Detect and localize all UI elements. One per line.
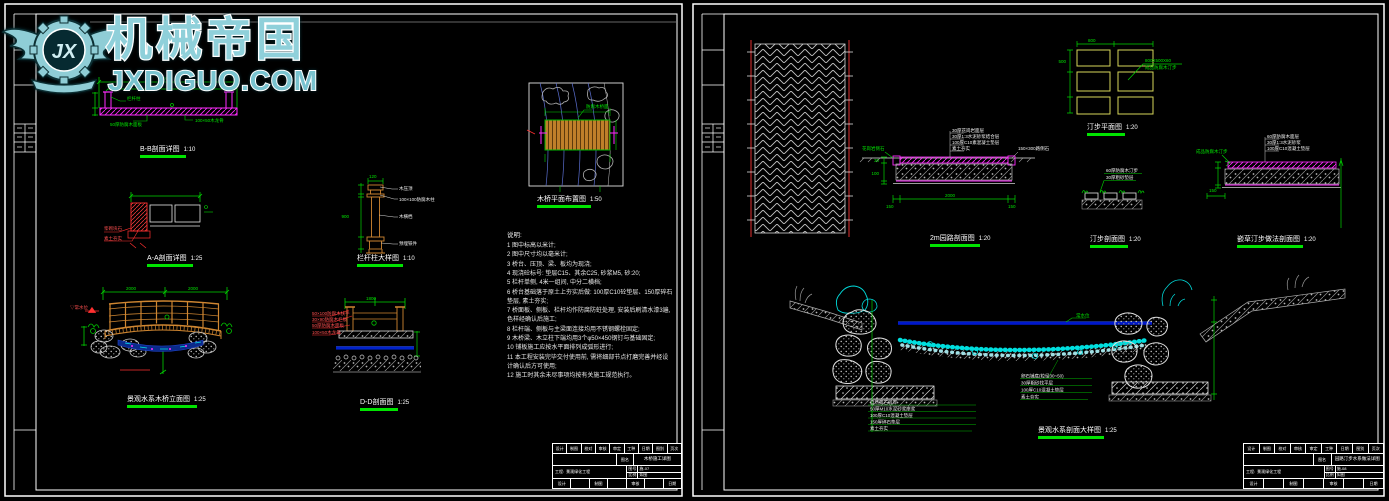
svg-text:150: 150 — [1209, 188, 1217, 193]
titleblock-cell — [1263, 479, 1283, 488]
label-scale: 1:10 — [403, 256, 415, 262]
construction-notes: 说明: 1 图中标高以米计; 2 图中尺寸均以毫米计; 3 桥台、压顶、梁、板均… — [507, 231, 673, 382]
titleblock-cell — [1303, 479, 1323, 488]
titleblock-cell: 校对 — [1274, 444, 1290, 453]
svg-text:900: 900 — [341, 214, 349, 219]
label-underline — [357, 264, 403, 267]
svg-text:100×100防腐木柱: 100×100防腐木柱 — [399, 196, 435, 203]
dd-section-drawing: 1800 50×100防腐木扶手 30×90防腐木栏板 50厚防腐木面板 100… — [312, 296, 421, 372]
label-text: A-A剖面详图 — [147, 255, 187, 262]
svg-text:150×300路侧石: 150×300路侧石 — [1018, 145, 1050, 152]
stepping-stone-section: 60厚防腐木汀步 30厚粗砂垫层 — [1082, 167, 1144, 209]
titleblock-cell: 审定 — [609, 444, 623, 453]
svg-text:800X500X60: 800X500X60 — [1145, 58, 1172, 63]
titleblock-name-value: 园路汀步水系做法详图 — [1331, 454, 1383, 465]
label-stream-section: 景观水系剖面大样图1:25 — [1038, 427, 1117, 439]
svg-text:100厚C10混凝土垫层: 100厚C10混凝土垫层 — [870, 412, 913, 419]
watermark-site: JXDIGUO.COM — [108, 65, 318, 96]
label-underline — [1237, 245, 1303, 248]
titleblock-cell: 图别 — [652, 444, 666, 453]
label-railing-post: 栏杆柱大样图1:10 — [357, 255, 415, 267]
titleblock-cell — [1244, 454, 1313, 465]
project-value: 景观绿化工程 — [566, 470, 590, 474]
note-line: 1 图中标高以米计; — [507, 242, 673, 251]
watermark-logo-text: JX — [52, 41, 78, 63]
note-line: 6 桥台基础落于原土上夯实后做: 100厚C10砼垫层、150厚碎石垫层, 素土… — [507, 289, 673, 308]
svg-text:100厚C10素混凝土垫层: 100厚C10素混凝土垫层 — [952, 139, 1000, 146]
svg-text:120: 120 — [369, 174, 377, 179]
svg-text:100厚C10混凝土垫层: 100厚C10混凝土垫层 — [1267, 145, 1310, 152]
titleblock-cell: 页次 — [1368, 444, 1384, 453]
titleblock-project: 工程: 景观绿化工程 — [1244, 466, 1324, 478]
aa-section-drawing: 浆砌块石 素土夯实 — [104, 192, 213, 248]
project-label: 工程: — [1246, 470, 1255, 474]
road-section-drawing: 30厚花岗岩面层 30厚1:3水泥砂浆结合层 100厚C10素混凝土垫层 素土夯… — [860, 127, 1050, 209]
titleblock-cell: 审核 — [626, 479, 644, 488]
svg-text:2000: 2000 — [945, 193, 956, 198]
titleblock-cell: 日期 — [1363, 479, 1383, 488]
label-scale: 1:20 — [1304, 237, 1316, 243]
notes-title: 说明: — [507, 231, 673, 241]
label-underline — [930, 244, 980, 247]
note-line: 2 图中尺寸均以毫米计; — [507, 251, 673, 260]
svg-text:2000: 2000 — [126, 286, 137, 291]
svg-text:30: 30 — [874, 158, 880, 163]
label-scale: 1:20 — [1129, 237, 1141, 243]
label-underline — [1038, 436, 1104, 439]
titleblock-cell: 设计 — [553, 444, 566, 453]
grass-paver-section: 60厚防腐木面层 30厚1:3水泥砂浆 100厚C10混凝土垫层 成品防腐木汀步… — [1196, 133, 1343, 228]
titleblock-cell: 工种 — [1321, 444, 1337, 453]
watermark: JX 机械帝国 JXDIGUO.COM — [0, 0, 340, 110]
label-text: 木桥平面布置图 — [537, 196, 586, 203]
svg-text:浆砌块石: 浆砌块石 — [104, 225, 122, 232]
svg-text:自然景石驳岸: 自然景石驳岸 — [870, 399, 897, 406]
label-bridge-elevation: 景观水系木桥立面图1:25 — [127, 396, 206, 408]
label-text: 2m园路剖面图 — [930, 235, 975, 242]
titleblock-cell: 制图 — [589, 479, 607, 488]
svg-text:常水位: 常水位 — [1076, 312, 1090, 319]
titleblock-cell: 校对 — [581, 444, 595, 453]
svg-text:1800: 1800 — [366, 296, 377, 301]
label-scale: 1:25 — [397, 400, 409, 406]
svg-text:100: 100 — [871, 171, 879, 176]
titleblock-cell — [553, 454, 616, 465]
titleblock-cell: 工种 — [624, 444, 638, 453]
svg-text:30×90防腐木栏板: 30×90防腐木栏板 — [312, 316, 348, 323]
label-road-section: 2m园路剖面图1:20 — [930, 235, 990, 247]
svg-text:100×50木龙骨: 100×50木龙骨 — [312, 329, 341, 336]
label-grass-paver-section: 嵌草汀步做法剖面图1:20 — [1237, 236, 1316, 248]
titleblock-project: 工程: 景观绿化工程 — [553, 466, 626, 478]
label-underline — [360, 408, 398, 411]
label-scale: 1:25 — [194, 397, 206, 403]
label-scale: 1:25 — [1105, 428, 1117, 434]
label-text: B-B剖面详图 — [140, 146, 180, 153]
label-underline — [537, 205, 591, 208]
svg-text:花岗岩侧石: 花岗岩侧石 — [862, 145, 885, 152]
titleblock-name-label: 图名 — [616, 454, 633, 465]
svg-text:50厚M10水泥砂浆座浆: 50厚M10水泥砂浆座浆 — [870, 406, 916, 413]
titleblock-cell: 图别 — [1352, 444, 1368, 453]
note-line: 8 栏杆端、侧板与主梁面连接均用不锈钢螺栓固定; — [507, 326, 673, 335]
titleblock-cell — [607, 479, 625, 488]
titleblock-cell: 日期 — [638, 444, 652, 453]
titleblock-cell: 审定 — [1305, 444, 1321, 453]
project-value: 景观绿化工程 — [1257, 470, 1281, 474]
titleblock-cell: 制图 — [1259, 444, 1275, 453]
svg-text:150: 150 — [886, 204, 894, 209]
svg-text:成品防腐木汀步: 成品防腐木汀步 — [1196, 148, 1228, 155]
label-scale: 1:25 — [191, 256, 203, 262]
note-line: 7 桥面板、侧板、栏杆均作防腐防蛀处理, 安装后刷清水漆3遍, 色样经确认后施工… — [507, 307, 673, 326]
cad-canvas: text{font-family:"Liberation Sans",sans-… — [0, 0, 1389, 501]
label-text: 栏杆柱大样图 — [357, 255, 399, 262]
titleblock-cell: 审核 — [595, 444, 609, 453]
titleblock-name-label: 图名 — [1313, 454, 1331, 465]
titleblock-cell: 日期 — [663, 479, 681, 488]
svg-text:500: 500 — [1058, 59, 1066, 64]
titleblock-cell — [1343, 479, 1363, 488]
railing-post-drawing: 120 900 木压顶 100×100防腐木柱 木横档 预埋铁件 — [341, 174, 435, 253]
label-text: 嵌草汀步做法剖面图 — [1237, 236, 1300, 243]
note-line: 4 现浇砼标号: 垫层C15、其余C25, 砂浆M5, 砂:20; — [507, 270, 673, 279]
svg-text:木横档: 木横档 — [399, 213, 413, 220]
label-dd-section: D-D剖面图1:25 — [360, 399, 409, 411]
titleblock-cell: 制图 — [566, 444, 580, 453]
label-scale: 1:50 — [590, 197, 602, 203]
svg-text:30厚粗砂找平层: 30厚粗砂找平层 — [1021, 380, 1054, 387]
note-line: 10 铺板施工应按水平面排列成弧形进行; — [507, 344, 673, 353]
svg-text:60厚防腐木汀步: 60厚防腐木汀步 — [1106, 167, 1139, 174]
label-underline — [147, 264, 193, 267]
svg-text:100×50木龙骨: 100×50木龙骨 — [195, 117, 224, 124]
svg-text:▽常水位: ▽常水位 — [70, 304, 88, 311]
svg-text:100厚C10混凝土垫层: 100厚C10混凝土垫层 — [1021, 387, 1064, 394]
note-line: 11 本工程安装完毕交付使用前, 需将细部节点打磨完善并经设计确认后方可使用; — [507, 354, 673, 373]
svg-text:30厚粗砂垫层: 30厚粗砂垫层 — [1106, 174, 1134, 181]
label-text: 景观水系剖面大样图 — [1038, 427, 1101, 434]
label-scale: 1:20 — [1126, 125, 1138, 131]
svg-text:卵石铺底(粒径30~50): 卵石铺底(粒径30~50) — [1021, 373, 1064, 380]
svg-text:素土夯实: 素土夯实 — [104, 235, 122, 242]
titleblock-cell — [644, 479, 662, 488]
titleblock-cell: 日期 — [1336, 444, 1352, 453]
label-text: 景观水系木桥立面图 — [127, 396, 190, 403]
svg-text:木压顶: 木压顶 — [399, 185, 413, 192]
label-aa-section: A-A剖面详图1:25 — [147, 255, 202, 267]
label-underline — [1090, 245, 1128, 248]
label-text: 汀步平面图 — [1087, 124, 1122, 131]
svg-text:素土夯实: 素土夯实 — [870, 425, 888, 432]
svg-text:成品防腐木汀步: 成品防腐木汀步 — [1145, 64, 1177, 71]
note-line: 9 木桥梁、木立柱下端均用3个φ50×450钢钉与基础固定; — [507, 335, 673, 344]
svg-text:30厚花岗岩面层: 30厚花岗岩面层 — [952, 127, 985, 134]
project-label: 工程: — [555, 470, 564, 474]
titleblock-right: 设计 制图 校对 审核 审定 工种 日期 图别 页次 图名 园路汀步水系做法详图… — [1243, 443, 1384, 489]
svg-text:800: 800 — [1088, 38, 1096, 43]
label-underline — [140, 155, 186, 158]
svg-text:30厚1:3水泥砂浆: 30厚1:3水泥砂浆 — [1267, 139, 1301, 146]
titleblock-cell: 设计 — [1244, 444, 1259, 453]
svg-text:防腐木桥面: 防腐木桥面 — [586, 103, 609, 110]
svg-text:素土夯实: 素土夯实 — [952, 145, 970, 152]
svg-text:50×100防腐木扶手: 50×100防腐木扶手 — [312, 310, 350, 317]
titleblock-cell: 设计 — [1244, 479, 1263, 488]
titleblock-cell — [570, 479, 588, 488]
label-text: D-D剖面图 — [360, 399, 393, 406]
svg-text:50厚防腐木面板: 50厚防腐木面板 — [312, 322, 345, 329]
stream-section-drawing: 常水位 自然景石驳岸 50厚M10水泥砂浆座浆 100厚C10混凝土垫层 150… — [790, 275, 1345, 432]
svg-text:60厚防腐木面层: 60厚防腐木面层 — [1267, 133, 1300, 140]
svg-text:预埋铁件: 预埋铁件 — [399, 240, 417, 247]
svg-text:2000: 2000 — [188, 286, 199, 291]
label-underline — [1087, 133, 1125, 136]
titleblock-cell: 审核 — [1323, 479, 1343, 488]
titleblock-cell: 设计 — [553, 479, 570, 488]
svg-text:30厚1:3水泥砂浆结合层: 30厚1:3水泥砂浆结合层 — [952, 133, 1000, 140]
label-scale: 1:10 — [184, 147, 196, 153]
label-scale: 1:20 — [979, 236, 991, 242]
titleblock-cell: 制图 — [1283, 479, 1303, 488]
note-line: 12 施工时其余未尽事项均按有关施工规范执行。 — [507, 372, 673, 381]
bridge-elevation-drawing: 2000 2000 ▽常水位 — [70, 286, 232, 374]
svg-text:素土夯实: 素土夯实 — [1021, 394, 1039, 401]
label-bridge-plan: 木桥平面布置图1:50 — [537, 196, 602, 208]
titleblock-left: 设计 制图 校对 审核 审定 工种 日期 图别 页次 图名 木桥施工详图 工程:… — [552, 443, 682, 489]
label-underline — [127, 405, 197, 408]
titleblock-cell: 页次 — [667, 444, 681, 453]
label-stepping-plan: 汀步平面图1:20 — [1087, 124, 1138, 136]
note-line: 5 栏杆单侧, 4米一组间, 中分二横档; — [507, 279, 673, 288]
paving-strip-plan — [747, 40, 853, 237]
label-stepping-section: 汀步剖面图1:20 — [1090, 236, 1141, 248]
bridge-plan-drawing: 防腐木桥面 — [527, 83, 623, 192]
titleblock-name-value: 木桥施工详图 — [633, 454, 681, 465]
label-bb-section: B-B剖面详图1:10 — [140, 146, 195, 158]
svg-text:150厚碎石垫层: 150厚碎石垫层 — [870, 419, 901, 426]
titleblock-cell: 审核 — [1290, 444, 1306, 453]
label-text: 汀步剖面图 — [1090, 236, 1125, 243]
svg-text:50厚防腐木面板: 50厚防腐木面板 — [110, 121, 143, 128]
svg-text:150: 150 — [1008, 204, 1016, 209]
note-line: 3 桥台、压顶、梁、板均为现浇; — [507, 261, 673, 270]
stepping-stones-plan: 800 500 800X500X60 成品防腐木汀步 — [1058, 38, 1182, 114]
watermark-brand: 机械帝国 — [106, 13, 306, 65]
